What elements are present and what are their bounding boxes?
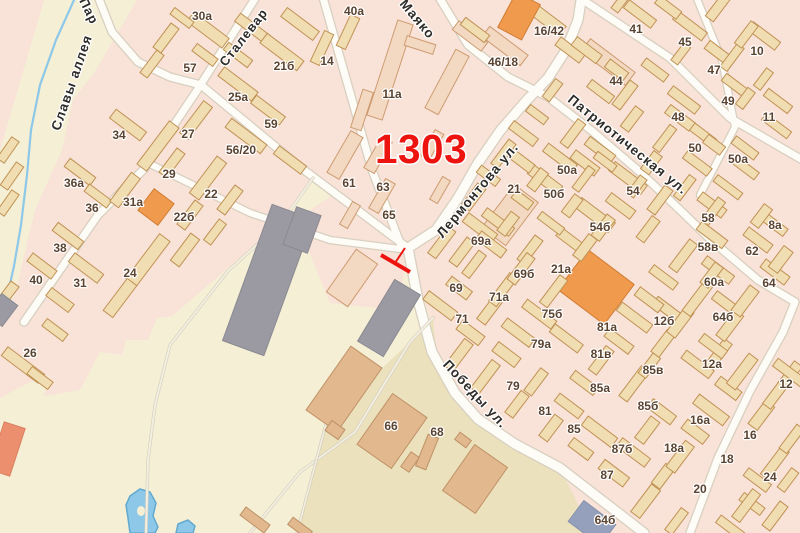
svg-text:79a: 79a [531,337,551,351]
svg-text:8a: 8a [768,218,782,232]
svg-text:63: 63 [376,180,390,194]
svg-text:85a: 85a [590,381,610,395]
svg-text:41: 41 [629,22,643,36]
svg-text:62: 62 [745,244,759,258]
svg-text:12: 12 [779,377,793,391]
svg-text:21б: 21б [274,59,295,73]
svg-text:85б: 85б [638,399,659,413]
svg-text:69б: 69б [514,267,535,281]
svg-text:58: 58 [701,211,715,225]
svg-text:24: 24 [763,470,777,484]
svg-text:56/20: 56/20 [226,143,256,157]
svg-text:50: 50 [688,141,702,155]
svg-text:34: 34 [112,128,126,142]
svg-text:12a: 12a [702,357,722,371]
svg-text:87б: 87б [612,442,633,456]
svg-text:54: 54 [626,184,640,198]
svg-text:26: 26 [23,346,37,360]
svg-text:31: 31 [73,276,87,290]
svg-text:38: 38 [53,241,67,255]
svg-text:49: 49 [721,94,735,108]
svg-text:87: 87 [600,468,614,482]
svg-text:16/42: 16/42 [534,24,564,38]
svg-text:30a: 30a [192,9,212,23]
svg-text:68: 68 [430,425,444,439]
svg-text:18: 18 [720,452,734,466]
svg-text:81в: 81в [591,347,612,361]
svg-text:58в: 58в [698,240,719,254]
svg-text:61: 61 [342,176,356,190]
svg-text:25a: 25a [228,90,248,104]
svg-text:59: 59 [264,117,278,131]
svg-text:50a: 50a [728,152,748,166]
svg-text:69: 69 [449,281,463,295]
svg-text:71a: 71a [489,290,509,304]
svg-text:24: 24 [123,266,137,280]
svg-text:21: 21 [507,182,521,196]
svg-text:12б: 12б [654,314,675,328]
svg-text:54б: 54б [590,220,611,234]
svg-text:16: 16 [743,428,757,442]
svg-text:75б: 75б [542,307,563,321]
svg-text:44: 44 [609,74,623,88]
svg-text:66: 66 [384,419,398,433]
svg-text:81: 81 [538,404,552,418]
svg-text:40a: 40a [344,4,364,18]
svg-text:14: 14 [320,54,334,68]
svg-text:60a: 60a [704,275,724,289]
svg-text:48: 48 [671,110,685,124]
svg-text:57: 57 [183,61,197,75]
svg-text:10: 10 [750,44,764,58]
svg-text:69a: 69a [471,234,491,248]
svg-text:36: 36 [85,201,99,215]
svg-text:64б: 64б [713,310,734,324]
svg-text:36a: 36a [64,176,84,190]
svg-text:47: 47 [707,63,721,77]
svg-text:22: 22 [204,187,218,201]
svg-text:29: 29 [162,167,176,181]
svg-text:81a: 81a [597,320,617,334]
svg-text:46/18: 46/18 [488,55,518,69]
svg-text:20: 20 [693,482,707,496]
svg-text:50a: 50a [557,163,577,177]
svg-text:45: 45 [678,35,692,49]
svg-text:1303: 1303 [375,126,467,172]
svg-text:31a: 31a [123,195,143,209]
svg-text:71: 71 [455,312,469,326]
svg-text:22б: 22б [174,210,195,224]
svg-text:64: 64 [762,276,776,290]
svg-text:79: 79 [506,379,520,393]
svg-text:85в: 85в [643,363,664,377]
svg-text:27: 27 [181,127,195,141]
svg-text:11a: 11a [382,87,402,101]
svg-text:65: 65 [382,208,396,222]
svg-text:21a: 21a [551,262,571,276]
svg-text:40: 40 [29,273,43,287]
svg-text:50б: 50б [544,187,565,201]
svg-text:85: 85 [567,422,581,436]
svg-text:16a: 16a [690,413,710,427]
svg-text:18a: 18a [664,441,684,455]
svg-text:11: 11 [763,110,776,124]
svg-text:64б: 64б [595,513,616,527]
